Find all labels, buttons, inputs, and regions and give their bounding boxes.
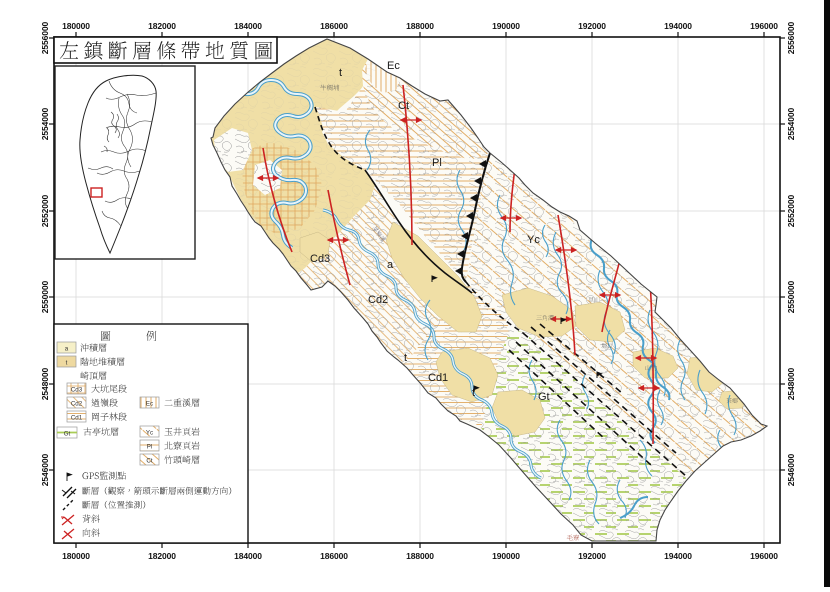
svg-text:Cd2: Cd2 [71, 401, 83, 408]
svg-text:2556000: 2556000 [786, 21, 796, 54]
svg-text:Cd1: Cd1 [71, 415, 83, 422]
svg-text:196000: 196000 [750, 551, 778, 561]
svg-text:188000: 188000 [406, 21, 434, 31]
svg-text:Pl: Pl [432, 157, 442, 169]
svg-text:Ct: Ct [146, 458, 152, 465]
svg-text:2556000: 2556000 [40, 21, 50, 54]
svg-text:Pl: Pl [147, 444, 153, 451]
svg-text:Ec: Ec [387, 60, 400, 72]
svg-text:190000: 190000 [492, 551, 520, 561]
svg-text:t: t [472, 387, 475, 399]
svg-text:Gt: Gt [538, 391, 550, 403]
svg-text:2554000: 2554000 [40, 107, 50, 140]
svg-text:192000: 192000 [578, 21, 606, 31]
svg-text:190000: 190000 [492, 21, 520, 31]
svg-text:Cd3: Cd3 [310, 253, 330, 265]
svg-text:2552000: 2552000 [40, 194, 50, 227]
svg-text:182000: 182000 [148, 21, 176, 31]
svg-text:192000: 192000 [578, 551, 606, 561]
svg-text:Cd2: Cd2 [368, 294, 388, 306]
svg-text:Cd1: Cd1 [428, 372, 448, 384]
svg-text:2550000: 2550000 [40, 280, 50, 313]
svg-text:184000: 184000 [234, 551, 262, 561]
svg-text:180000: 180000 [62, 551, 90, 561]
svg-text:2554000: 2554000 [786, 107, 796, 140]
svg-text:186000: 186000 [320, 21, 348, 31]
svg-text:Yc: Yc [146, 430, 153, 437]
svg-text:t: t [404, 352, 407, 364]
svg-text:186000: 186000 [320, 551, 348, 561]
svg-text:2550000: 2550000 [786, 280, 796, 313]
svg-text:194000: 194000 [664, 551, 692, 561]
svg-text:2548000: 2548000 [40, 367, 50, 400]
svg-text:184000: 184000 [234, 21, 262, 31]
svg-text:2546000: 2546000 [40, 453, 50, 486]
svg-text:194000: 194000 [664, 21, 692, 31]
svg-text:Cd3: Cd3 [71, 387, 83, 394]
svg-text:Gt: Gt [64, 431, 71, 438]
svg-text:t: t [66, 360, 68, 367]
svg-text:196000: 196000 [750, 21, 778, 31]
svg-text:2548000: 2548000 [786, 367, 796, 400]
svg-text:a: a [65, 346, 69, 353]
svg-text:2552000: 2552000 [786, 194, 796, 227]
svg-text:Ec: Ec [146, 401, 153, 408]
svg-text:t: t [339, 67, 342, 79]
svg-text:Yc: Yc [527, 234, 540, 246]
svg-text:Ct: Ct [398, 100, 409, 112]
svg-text:180000: 180000 [62, 21, 90, 31]
svg-text:2546000: 2546000 [786, 453, 796, 486]
svg-text:188000: 188000 [406, 551, 434, 561]
svg-text:182000: 182000 [148, 551, 176, 561]
svg-text:a: a [387, 259, 394, 271]
